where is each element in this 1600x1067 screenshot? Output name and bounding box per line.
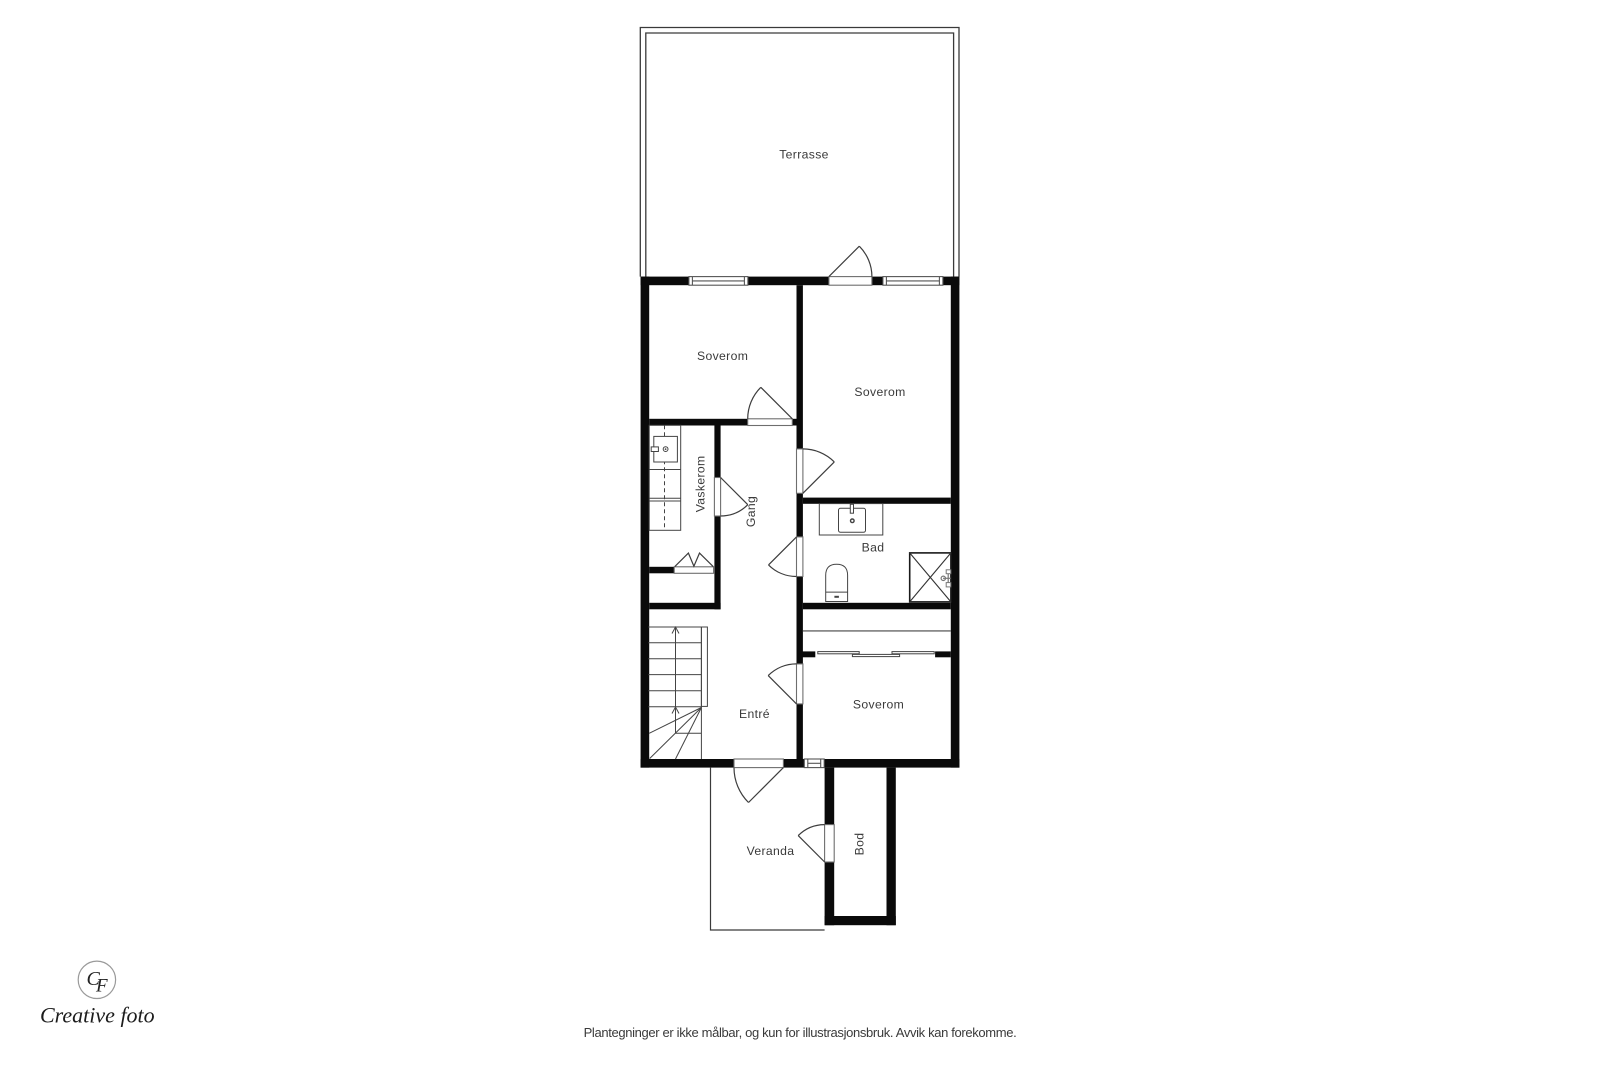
svg-text:Gang: Gang — [744, 496, 758, 527]
svg-text:Vaskerom: Vaskerom — [694, 456, 708, 513]
svg-text:F: F — [95, 976, 108, 997]
svg-text:Creative foto: Creative foto — [40, 1002, 155, 1027]
svg-text:Terrasse: Terrasse — [779, 148, 829, 162]
svg-text:Soverom: Soverom — [853, 698, 904, 712]
svg-text:Soverom: Soverom — [697, 349, 748, 363]
svg-text:Veranda: Veranda — [747, 844, 795, 858]
svg-text:Bod: Bod — [853, 833, 867, 856]
svg-text:Plantegninger er ikke målbar,: Plantegninger er ikke målbar, og kun for… — [584, 1025, 1017, 1040]
svg-text:Bad: Bad — [862, 541, 885, 555]
svg-text:Entré: Entré — [739, 707, 770, 721]
svg-text:Soverom: Soverom — [854, 385, 905, 399]
